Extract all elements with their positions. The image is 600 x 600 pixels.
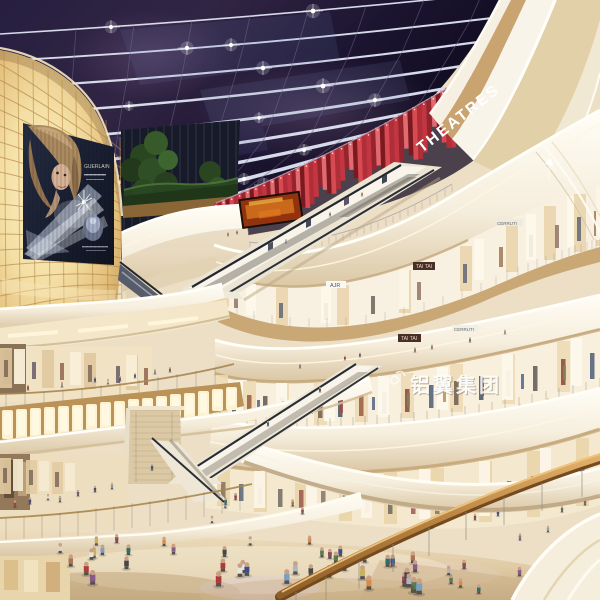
svg-text:铝翼集团: 铝翼集团 [410, 373, 502, 397]
svg-text:TAI TAI: TAI TAI [416, 264, 432, 270]
svg-text:CERRUTI: CERRUTI [454, 327, 474, 332]
svg-text:CERRUTI: CERRUTI [497, 221, 517, 226]
svg-text:TAI TAI: TAI TAI [401, 336, 417, 342]
svg-text:AJR: AJR [330, 283, 340, 289]
